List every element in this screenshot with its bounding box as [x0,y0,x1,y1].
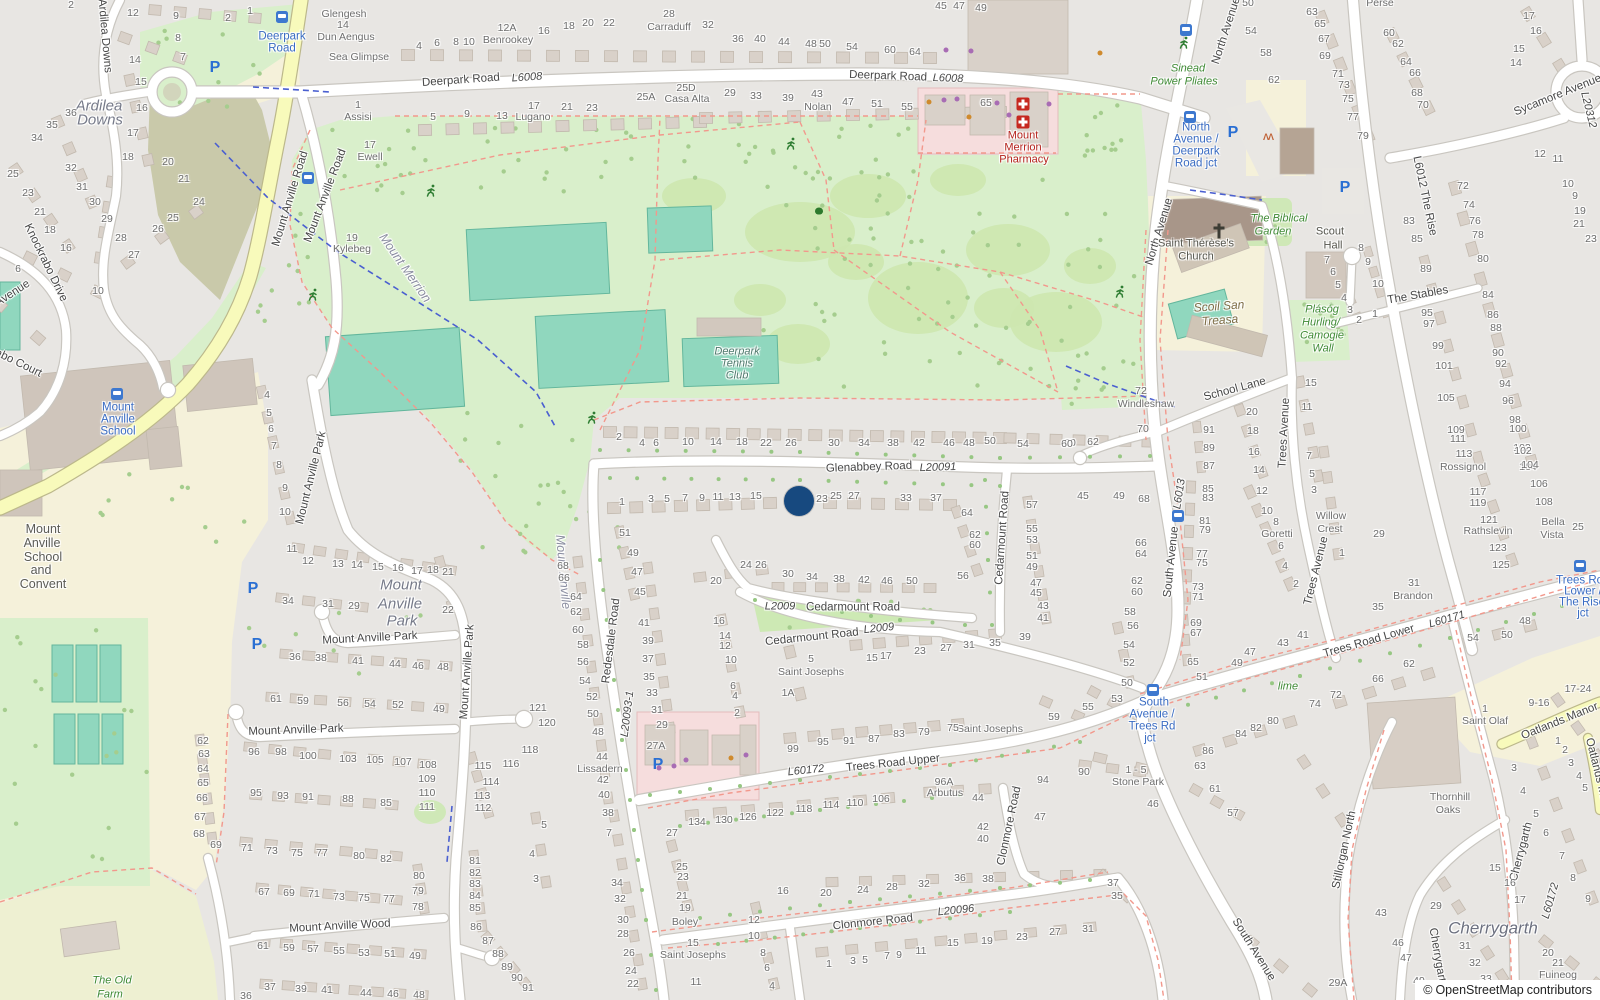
roadside-dot [985,531,989,535]
tree-dot [737,143,741,147]
building [836,52,849,63]
building [665,427,678,438]
building [720,51,733,62]
roadside-dot [846,805,850,809]
building [763,497,776,508]
building [586,661,596,673]
roadside-dot [855,480,859,484]
building [142,154,154,167]
building [873,638,886,649]
building [1304,423,1315,435]
tree-dot [682,159,686,163]
tree-dot [400,191,404,195]
building [531,812,542,824]
roadside-dot [855,452,859,456]
tree-dot [875,198,879,202]
tree-dot [306,255,310,259]
building [293,747,306,757]
building [1050,434,1062,444]
scrub-patch [1064,248,1116,284]
attribution-osm-link[interactable]: OpenStreetMap [1435,983,1523,997]
building [896,636,909,647]
roadside-dot [649,953,653,957]
building [195,734,205,746]
building [696,499,709,510]
tree-dot [889,600,893,604]
roadside-dot [830,929,834,933]
building [666,117,679,128]
tree-dot [1068,305,1072,309]
roadside-dot [918,920,922,924]
building [387,700,400,710]
roadside-dot [798,450,802,454]
tree-dot [107,826,111,830]
roadside-dot [1328,666,1332,670]
roadside-dot [912,481,916,485]
building [295,793,308,803]
building [928,721,941,732]
building [794,687,807,701]
building [850,640,863,651]
building [697,318,761,336]
roadside-dot [1270,681,1274,685]
building [926,874,938,883]
building [721,637,732,650]
building [829,430,842,441]
tree-dot [357,671,361,675]
tree-dot [1098,265,1102,269]
roadside-dot [608,476,612,480]
building [643,562,653,574]
roadside-dot [1186,703,1190,707]
tree-dot [868,263,872,267]
map-canvas[interactable]: Deerpark RoadL6008Deerpark RoadL6008Moun… [0,0,1600,1000]
roadside-dot [1058,881,1062,885]
building [576,582,586,594]
building [741,498,754,509]
tree-dot [1103,212,1107,216]
tree-dot [1076,379,1080,383]
roadside-dot [938,892,942,896]
roadside-dot [1298,674,1302,678]
tree-dot [1012,214,1016,218]
roadside-dot [632,828,636,832]
building [546,50,559,61]
roadside-dot [798,778,802,782]
tree-dot [1109,148,1113,152]
building [394,658,407,668]
culdesac [485,951,499,965]
building [905,939,918,949]
roadside-dot [1214,696,1218,700]
roadside-dot [598,448,602,452]
building [1333,548,1343,560]
tree-dot [877,175,881,179]
building [911,431,924,442]
tree-dot [519,424,523,428]
building [1041,612,1052,624]
tree-dot [977,212,981,216]
roadside-dot [827,479,831,483]
building [390,851,403,861]
tree-dot [788,625,792,629]
tree-dot [287,263,291,267]
building [730,683,741,696]
roadside-dot [782,602,786,606]
roadside-dot [983,478,987,482]
building [348,654,361,664]
building [713,807,727,818]
building [200,773,210,785]
tree-dot [112,731,116,735]
building [768,978,779,991]
building [924,583,936,592]
building [617,858,628,870]
roadside-dot [628,798,632,802]
building [630,502,643,513]
tree-dot [822,319,826,323]
tree-dot [1113,147,1117,151]
tree-dot [882,340,886,344]
scrub-patch [966,224,1050,276]
tree-dot [1076,354,1080,358]
tree-dot [100,857,104,861]
road [230,937,254,942]
tree-dot [629,157,633,161]
building [1023,496,1034,508]
tree-dot [423,158,427,162]
tree-dot [480,545,484,549]
roadside-dot [678,790,682,794]
roadside-dot [1008,910,1012,914]
building [768,429,781,440]
tree-dot [1101,366,1105,370]
tree-dot [971,230,975,234]
tree-dot [263,319,267,323]
tree-dot [816,170,820,174]
tree-dot [337,611,341,615]
roadside-dot [818,808,822,812]
building [418,759,431,769]
roadside-dot [884,453,888,457]
tree-dot [502,169,506,173]
roadside-dot [1476,628,1480,632]
building [815,583,827,592]
tree-dot [761,328,765,332]
tree-dot [686,144,690,148]
roadside-dot [1118,454,1122,458]
roadside-dot [717,477,721,481]
building [952,432,965,443]
pitch [466,222,610,300]
building [280,939,293,949]
building [655,653,665,665]
building [659,676,669,688]
tree-dot [465,411,469,415]
tree-dot [771,149,775,153]
building [124,74,136,87]
tree-dot [599,175,603,179]
roadside-dot [930,796,934,800]
building [847,498,860,509]
roadside-dot [828,775,832,779]
building [1306,252,1346,298]
building [778,52,791,63]
tree-dot [330,128,334,132]
tree-dot [39,687,43,691]
building [575,50,588,61]
roadside-dot [1088,455,1092,459]
tree-dot [1121,359,1125,363]
building [401,49,414,60]
tree-dot [332,648,336,652]
building [363,698,376,708]
roadside-dot [888,769,892,773]
tree-dot [33,679,37,683]
roadside-dot [974,758,978,762]
location-marker[interactable] [784,486,814,516]
tree-dot [747,152,751,156]
tree-dot [624,131,628,135]
building [411,702,424,712]
tree-dot [562,490,566,494]
building [1194,441,1203,453]
roadside-dot [840,610,844,614]
building [290,842,303,852]
tree-dot [1302,302,1306,306]
tree-dot [257,71,261,75]
tree-dot [1026,322,1030,326]
building [856,727,869,738]
tree-dot [847,237,851,241]
tree-dot [543,177,547,181]
building [881,583,893,592]
tree-dot [170,497,174,501]
building [202,793,212,805]
building [1308,446,1319,458]
tree-dot [251,63,255,67]
building [649,608,659,620]
roadside-dot [648,793,652,797]
tree-dot [909,240,913,244]
building [473,885,483,897]
building [826,877,838,886]
rise-carpark [1322,168,1364,214]
tree-dot [868,124,872,128]
building [880,725,893,736]
building [1329,522,1339,534]
building [629,930,640,942]
building [580,608,590,620]
roadside-dot [858,926,862,930]
building [436,703,449,713]
building [272,792,285,802]
tree-dot [94,628,98,632]
building [349,985,362,995]
building [875,941,888,951]
tree-dot [946,300,950,304]
building [327,984,340,994]
roadside-dot [636,858,640,862]
roadside-dot [655,449,659,453]
tree-dot [1017,243,1021,247]
tree-dot [127,472,131,476]
building [837,583,849,592]
building [556,120,569,131]
building [1027,433,1039,443]
roadside-dot [902,799,906,803]
building [881,792,895,803]
tree-dot [816,357,820,361]
building [174,7,187,18]
tree-dot [753,145,757,149]
tree-dot [375,188,379,192]
building [735,706,746,719]
roadside-dot [869,614,873,618]
building [1078,760,1091,770]
building [302,940,315,950]
tree-dot [1329,303,1333,307]
building [853,795,867,806]
building [968,0,1068,74]
building [1037,589,1048,601]
building [363,798,376,808]
roadside-dot [1148,454,1152,458]
building [1054,925,1067,935]
tree-dot [1004,326,1008,330]
tree-dot [837,135,841,139]
building [646,585,656,597]
building [919,499,932,510]
tree-dot [463,437,467,441]
tree-dot [1131,362,1135,366]
culdesac [1074,452,1086,464]
building [414,949,427,959]
building [662,51,675,62]
building [1322,471,1332,483]
tree-dot [387,147,391,151]
tree-dot [814,302,818,306]
roadside-dot [662,477,666,481]
building [603,792,613,804]
building [808,731,821,742]
roadside-dot [608,648,612,652]
building [680,730,708,765]
building [282,981,295,991]
tree-dot [828,176,832,180]
tree-dot [1115,103,1119,107]
tree-dot [958,351,962,355]
roadside-dot [798,478,802,482]
building [613,834,624,846]
tree-dot [479,185,483,189]
building [315,844,328,854]
tree-dot [886,211,890,215]
building [609,810,620,822]
building [1030,542,1041,554]
tree-dot [122,708,126,712]
culdesac [161,383,175,397]
tree-dot [908,261,912,265]
building [932,431,945,442]
building [619,546,630,559]
tree-dot [225,104,229,108]
building [386,800,399,810]
building [1313,470,1324,482]
tree-dot [950,315,954,319]
culdesac [229,705,243,719]
tree-dot [406,129,410,133]
tree-dot [986,243,990,247]
building [278,885,291,895]
tree-dot [1066,263,1070,267]
roadside-dot [998,456,1002,460]
building [644,427,657,438]
building [726,660,737,673]
building [1073,435,1085,445]
building [276,593,289,603]
tree-dot [221,32,225,36]
tree-dot [911,169,915,173]
building [832,729,845,740]
tree-dot [906,286,910,290]
building [471,868,481,880]
roadside-dot [1504,620,1508,624]
building [473,123,486,134]
tree-dot [1059,339,1063,343]
tree-dot [1119,138,1123,142]
tree-dot [216,80,220,84]
building [762,952,773,965]
attribution-copyright: © [1423,983,1432,997]
building [674,500,687,511]
building [371,656,384,666]
scrub-patch [830,174,906,218]
tree-dot [941,249,945,253]
building [809,430,822,441]
building [356,602,369,612]
roadside-dot [811,606,815,610]
tree-dot [975,383,979,387]
building [662,699,672,711]
tree-dot [129,709,133,713]
roundabout-island [163,83,181,101]
roadside-dot [678,824,682,828]
building [488,50,501,61]
tree-dot [538,483,542,487]
building [600,766,610,778]
tree-dot [917,317,921,321]
tree-dot [869,226,873,230]
roadside-dot [1028,456,1032,460]
building [440,661,453,671]
building [417,659,430,669]
roadside-dot [1088,878,1092,882]
building [302,596,315,606]
building [590,687,600,699]
building [645,725,675,765]
roadside-dot [1588,596,1592,600]
building [1118,649,1129,662]
building [368,754,381,764]
building [740,725,756,775]
roadside-dot [768,781,772,785]
building [256,883,269,893]
roadside-dot [769,450,773,454]
building [902,583,914,592]
roadside-dot [738,784,742,788]
building [596,740,606,752]
